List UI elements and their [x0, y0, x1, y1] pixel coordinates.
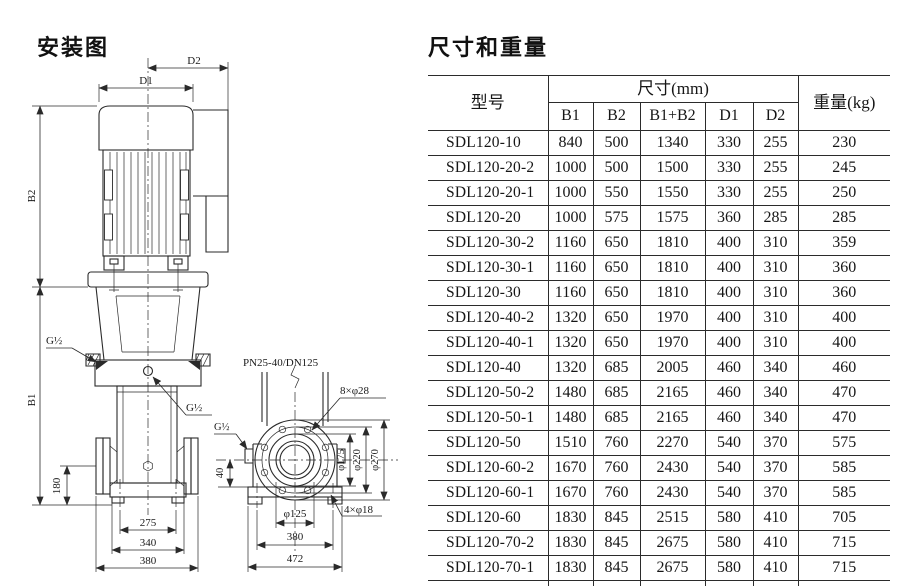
dimension-cell: 1575	[640, 206, 705, 231]
dimension-cell: 1670	[548, 456, 593, 481]
header-b1b2: B1+B2	[640, 103, 705, 131]
dimension-cell: 550	[593, 181, 640, 206]
label-275: 275	[140, 517, 157, 529]
dimension-cell: 1810	[640, 281, 705, 306]
dimension-cell: 1830	[548, 531, 593, 556]
dimension-cell: 2675	[640, 556, 705, 581]
model-cell: SDL120-70-1	[428, 556, 548, 581]
dimension-cell: 685	[593, 356, 640, 381]
dimension-cell: 460	[705, 381, 753, 406]
table-row: SDL120-30-211606501810400310359	[428, 231, 890, 256]
dimension-cell: 540	[705, 481, 753, 506]
dimension-cell: 1830	[548, 506, 593, 531]
model-cell: SDL120-50-2	[428, 381, 548, 406]
header-d1: D1	[705, 103, 753, 131]
table-row: SDL120-7018308452675580410715	[428, 581, 890, 586]
model-cell: SDL120-30-2	[428, 231, 548, 256]
model-cell: SDL120-20	[428, 206, 548, 231]
weight-cell: 285	[798, 206, 890, 231]
table-row: SDL120-40-213206501970400310400	[428, 306, 890, 331]
side-flanges	[96, 438, 198, 494]
dimension-cell: 1810	[640, 256, 705, 281]
dimension-cell: 310	[753, 231, 798, 256]
model-cell: SDL120-60-1	[428, 481, 548, 506]
label-340: 340	[140, 537, 157, 549]
model-cell: SDL120-10	[428, 131, 548, 156]
dimension-cell: 2430	[640, 456, 705, 481]
label-d2: D2	[187, 55, 200, 67]
header-model: 型号	[428, 76, 548, 131]
weight-cell: 715	[798, 531, 890, 556]
motor	[99, 106, 228, 292]
dimension-cell: 1320	[548, 331, 593, 356]
catalog-page: 安装图 尺寸和重量	[0, 0, 900, 586]
label-d220: φ220	[352, 449, 363, 471]
dimension-cell: 1830	[548, 556, 593, 581]
dimension-cell: 310	[753, 306, 798, 331]
dimension-cell: 1670	[548, 481, 593, 506]
label-472: 472	[287, 553, 304, 565]
pump-barrel	[117, 386, 177, 483]
dimension-cell: 1320	[548, 356, 593, 381]
dimension-cell: 1830	[548, 581, 593, 586]
installation-diagram: D2 D1 B2 B1 180 275 340	[0, 0, 420, 586]
dimension-cell: 360	[705, 206, 753, 231]
table-row: SDL120-50-214806852165460340470	[428, 381, 890, 406]
label-d175: φ175	[336, 449, 347, 471]
dimension-cell: 1970	[640, 331, 705, 356]
dimension-cell: 845	[593, 581, 640, 586]
header-b1: B1	[548, 103, 593, 131]
weight-cell: 230	[798, 131, 890, 156]
dimension-cell: 650	[593, 281, 640, 306]
dimension-cell: 410	[753, 506, 798, 531]
label-g-half-drain: G½	[186, 402, 202, 414]
dimension-cell: 400	[705, 306, 753, 331]
model-cell: SDL120-20-2	[428, 156, 548, 181]
dimension-cell: 845	[593, 556, 640, 581]
weight-cell: 585	[798, 456, 890, 481]
model-cell: SDL120-60-2	[428, 456, 548, 481]
dimension-cell: 580	[705, 556, 753, 581]
table-row: SDL120-3011606501810400310360	[428, 281, 890, 306]
model-cell: SDL120-50-1	[428, 406, 548, 431]
table-row: SDL120-30-111606501810400310360	[428, 256, 890, 281]
flange-center-lines	[216, 392, 398, 552]
dimension-cell: 2430	[640, 481, 705, 506]
table-row: SDL120-20-210005001500330255245	[428, 156, 890, 181]
label-d125: φ125	[284, 508, 307, 520]
label-40: 40	[215, 468, 226, 479]
weight-cell: 575	[798, 431, 890, 456]
dimension-cell: 685	[593, 381, 640, 406]
dimension-cell: 330	[705, 131, 753, 156]
break-mark	[291, 366, 299, 388]
dimension-cell: 410	[753, 556, 798, 581]
dimension-cell: 2515	[640, 506, 705, 531]
dimension-cell: 1480	[548, 381, 593, 406]
model-cell: SDL120-40-2	[428, 306, 548, 331]
model-cell: SDL120-30-1	[428, 256, 548, 281]
table-title: 尺寸和重量	[428, 30, 548, 62]
model-cell: SDL120-60	[428, 506, 548, 531]
weight-cell: 460	[798, 356, 890, 381]
table-row: SDL120-20-110005501550330255250	[428, 181, 890, 206]
dimension-cell: 2005	[640, 356, 705, 381]
dimension-cell: 540	[705, 456, 753, 481]
dimension-cell: 310	[753, 256, 798, 281]
weight-cell: 359	[798, 231, 890, 256]
dimension-cell: 255	[753, 131, 798, 156]
table-row: SDL120-70-218308452675580410715	[428, 531, 890, 556]
dimension-cell: 1550	[640, 181, 705, 206]
model-cell: SDL120-70	[428, 581, 548, 586]
dimension-cell: 255	[753, 181, 798, 206]
table-row: SDL120-50-114806852165460340470	[428, 406, 890, 431]
dimension-cell: 1160	[548, 256, 593, 281]
label-380-front: 380	[140, 555, 157, 567]
table-row: SDL120-4013206852005460340460	[428, 356, 890, 381]
flange-base-view: PN25-40/DN125	[214, 357, 398, 572]
model-cell: SDL120-70-2	[428, 531, 548, 556]
dimension-cell: 685	[593, 406, 640, 431]
label-g-half-left: G½	[46, 335, 62, 347]
dimension-cell: 370	[753, 481, 798, 506]
header-weight: 重量(kg)	[798, 76, 890, 131]
dimension-cell: 2165	[640, 381, 705, 406]
label-180: 180	[51, 477, 63, 494]
dimension-cell: 330	[705, 156, 753, 181]
table-row: SDL120-6018308452515580410705	[428, 506, 890, 531]
dimension-cell: 400	[705, 281, 753, 306]
label-4xd18: 4×φ18	[344, 504, 374, 516]
dimension-cell: 340	[753, 406, 798, 431]
dimension-cell: 410	[753, 581, 798, 586]
dimension-cell: 1000	[548, 206, 593, 231]
dimension-cell: 580	[705, 506, 753, 531]
weight-cell: 400	[798, 331, 890, 356]
weight-cell: 360	[798, 281, 890, 306]
dimension-cell: 2270	[640, 431, 705, 456]
weight-cell: 470	[798, 406, 890, 431]
dimension-cell: 845	[593, 506, 640, 531]
dimension-cell: 2165	[640, 406, 705, 431]
dimension-cell: 1000	[548, 181, 593, 206]
header-d2: D2	[753, 103, 798, 131]
dimension-cell: 410	[753, 531, 798, 556]
weight-cell: 250	[798, 181, 890, 206]
weight-cell: 400	[798, 306, 890, 331]
dimension-cell: 310	[753, 331, 798, 356]
dimension-cell: 460	[705, 356, 753, 381]
dimension-cell: 310	[753, 281, 798, 306]
dimensions-table: 型号 尺寸(mm) 重量(kg) B1 B2 B1+B2 D1 D2 SDL12…	[428, 75, 890, 586]
dimension-cell: 1160	[548, 231, 593, 256]
dimension-cell: 1970	[640, 306, 705, 331]
table-row: SDL120-40-113206501970400310400	[428, 331, 890, 356]
dimension-cell: 500	[593, 156, 640, 181]
weight-cell: 360	[798, 256, 890, 281]
dimension-cell: 1500	[640, 156, 705, 181]
dimension-cell: 575	[593, 206, 640, 231]
dimension-cell: 1810	[640, 231, 705, 256]
dimension-cell: 400	[705, 256, 753, 281]
label-g-half-gauge: G½	[214, 422, 230, 433]
model-cell: SDL120-20-1	[428, 181, 548, 206]
dimension-cell: 2675	[640, 531, 705, 556]
header-b2: B2	[593, 103, 640, 131]
dimension-cell: 400	[705, 331, 753, 356]
label-b2: B2	[26, 190, 38, 203]
dimension-cell: 285	[753, 206, 798, 231]
dimension-cell: 340	[753, 381, 798, 406]
weight-cell: 245	[798, 156, 890, 181]
pump-front-view: D2 D1 B2 B1 180 275 340	[26, 55, 228, 572]
dimension-cell: 340	[753, 356, 798, 381]
terminal-box	[193, 110, 228, 252]
weight-cell: 705	[798, 506, 890, 531]
dimension-cell: 840	[548, 131, 593, 156]
dimension-cell: 330	[705, 181, 753, 206]
dimension-cell: 1320	[548, 306, 593, 331]
weight-cell: 585	[798, 481, 890, 506]
weight-cell: 715	[798, 556, 890, 581]
dimension-cell: 760	[593, 481, 640, 506]
header-dims-group: 尺寸(mm)	[548, 76, 798, 103]
dimension-cell: 1000	[548, 156, 593, 181]
dimension-cell: 1510	[548, 431, 593, 456]
dimension-cell: 580	[705, 531, 753, 556]
header-row-1: 型号 尺寸(mm) 重量(kg)	[428, 76, 890, 103]
dimension-cell: 1480	[548, 406, 593, 431]
model-cell: SDL120-40	[428, 356, 548, 381]
dimension-cell: 760	[593, 431, 640, 456]
dimension-cell: 650	[593, 256, 640, 281]
model-cell: SDL120-30	[428, 281, 548, 306]
table-row: SDL120-5015107602270540370575	[428, 431, 890, 456]
label-380-base: 380	[287, 531, 304, 543]
dimension-cell: 400	[705, 231, 753, 256]
dimension-cell: 650	[593, 306, 640, 331]
dimension-cell: 255	[753, 156, 798, 181]
weight-cell: 715	[798, 581, 890, 586]
dimension-cell: 1340	[640, 131, 705, 156]
dimension-cell: 650	[593, 331, 640, 356]
dimension-cell: 650	[593, 231, 640, 256]
dimension-cell: 370	[753, 456, 798, 481]
table-row: SDL120-60-116707602430540370585	[428, 481, 890, 506]
model-cell: SDL120-50	[428, 431, 548, 456]
dimension-cell: 760	[593, 456, 640, 481]
weight-cell: 470	[798, 381, 890, 406]
dimension-cell: 845	[593, 531, 640, 556]
flange-dimensions: 8×φ28 G½ 40 φ175 φ220 φ270 4×φ18	[214, 385, 390, 572]
label-b1: B1	[26, 394, 38, 407]
dimension-cell: 460	[705, 406, 753, 431]
model-cell: SDL120-40-1	[428, 331, 548, 356]
table-body: SDL120-108405001340330255230SDL120-20-21…	[428, 131, 890, 586]
dimension-cell: 370	[753, 431, 798, 456]
dimension-cell: 580	[705, 581, 753, 586]
table-row: SDL120-60-216707602430540370585	[428, 456, 890, 481]
label-d1: D1	[139, 75, 152, 87]
label-flange-spec: PN25-40/DN125	[243, 357, 319, 369]
dimension-cell: 1160	[548, 281, 593, 306]
dimension-cell: 540	[705, 431, 753, 456]
label-d270: φ270	[370, 449, 381, 471]
label-8xd28: 8×φ28	[340, 385, 370, 397]
dimension-cell: 500	[593, 131, 640, 156]
table-row: SDL120-70-118308452675580410715	[428, 556, 890, 581]
dimension-cell: 2675	[640, 581, 705, 586]
table-row: SDL120-108405001340330255230	[428, 131, 890, 156]
table-row: SDL120-2010005751575360285285	[428, 206, 890, 231]
